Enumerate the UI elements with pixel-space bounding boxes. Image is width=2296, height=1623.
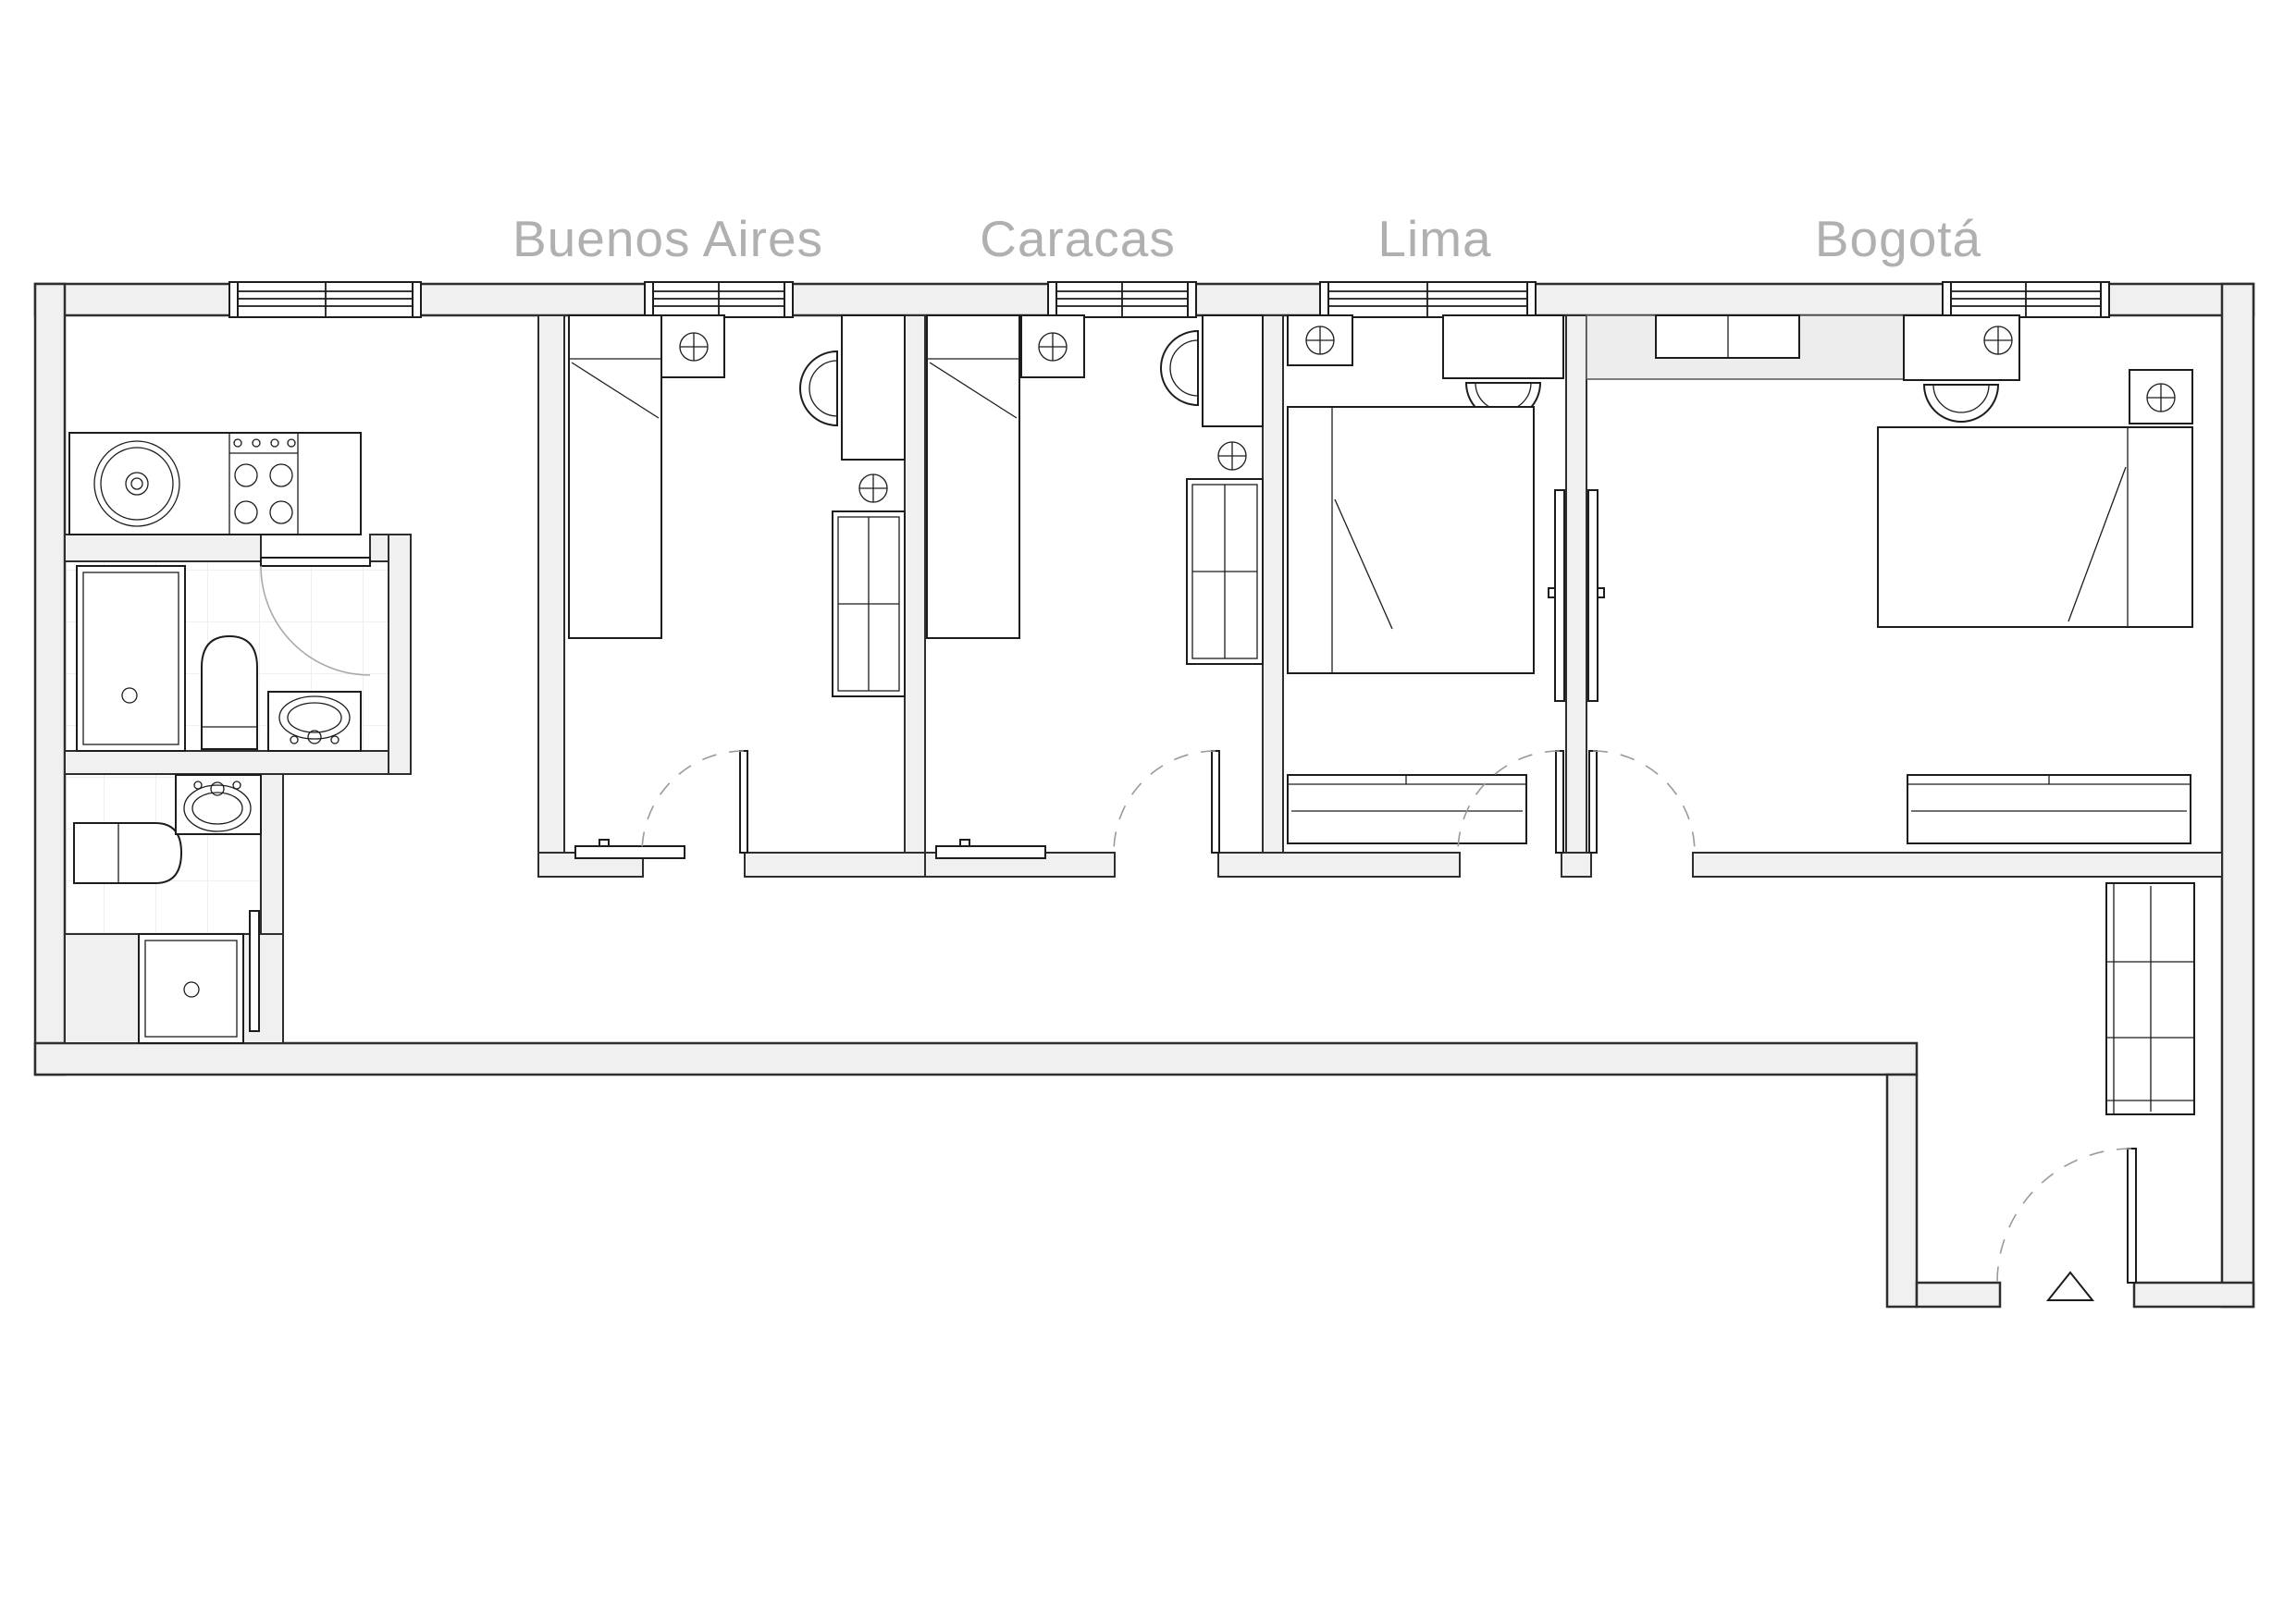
exterior-wall-left	[35, 284, 65, 1075]
wardrobe	[1187, 479, 1263, 664]
shelf-unit	[2106, 883, 2194, 1114]
wall-chunk-shower-left	[65, 934, 139, 1043]
desk	[1443, 315, 1563, 378]
light-socket-icon	[859, 474, 887, 502]
chair-icon	[1161, 331, 1198, 405]
label-buenos-aires: Buenos Aires	[512, 210, 823, 267]
window-buenos-aires	[645, 282, 793, 317]
label-bogota: Bogotá	[1815, 210, 1981, 267]
window-caracas	[1048, 282, 1196, 317]
washbasin-icon	[268, 692, 361, 751]
light-socket-icon	[1306, 326, 1334, 354]
door-swing-arc	[642, 751, 744, 853]
wall-bath1-hall	[389, 535, 411, 774]
bottom-wall-ba-caracas	[745, 853, 925, 877]
single-bed	[1878, 427, 2192, 627]
room-caracas	[927, 315, 1263, 858]
wardrobe	[833, 511, 905, 696]
shower-tray	[139, 934, 243, 1043]
toilet-icon	[74, 823, 181, 883]
wall-caracas-lima	[1263, 315, 1283, 877]
chair-icon	[1924, 385, 1998, 422]
room-lima	[1288, 315, 1564, 853]
room-buenos-aires	[569, 315, 905, 858]
door-leaf	[740, 751, 747, 853]
floor-plan-drawing: Buenos Aires Caracas Lima Bogotá	[0, 0, 2296, 1623]
kitchen-living	[69, 433, 361, 535]
door-leaf	[1556, 751, 1563, 853]
bottom-wall-bogota	[1693, 853, 2222, 877]
label-caracas: Caracas	[980, 210, 1176, 267]
washbasin-icon	[176, 775, 261, 834]
bottom-wall-pier-lima-bogota	[1562, 853, 1591, 877]
label-lima: Lima	[1377, 210, 1491, 267]
window-living	[229, 282, 421, 317]
wall-bath1-bath2	[65, 751, 389, 774]
wardrobe	[1656, 315, 1799, 358]
door-swing-arc	[1114, 751, 1216, 853]
chair-icon	[800, 351, 837, 425]
radiator	[1588, 490, 1604, 701]
bathroom1-door-leaf	[261, 558, 370, 566]
door-leaf	[1589, 751, 1597, 853]
bench-dresser	[1288, 775, 1526, 843]
entrance-hall	[1997, 883, 2194, 1300]
light-socket-icon	[2147, 384, 2175, 412]
floor-plan-page: Buenos Aires Caracas Lima Bogotá	[0, 0, 2296, 1623]
exterior-wall-vestibule-left	[1887, 1075, 1917, 1307]
wall-buenosaires-caracas	[905, 315, 925, 877]
double-bed	[1288, 407, 1534, 673]
exterior-wall-corridor-bottom	[35, 1043, 1917, 1075]
shower-cabin	[77, 566, 185, 751]
door-leaf	[1212, 751, 1219, 853]
toilet-icon	[202, 636, 257, 749]
light-socket-icon	[1218, 442, 1246, 470]
radiator	[575, 840, 685, 858]
wall-lima-bogota	[1566, 315, 1586, 877]
exterior-wall-right	[2222, 284, 2253, 1307]
vestibule-bottom-wall-right	[2134, 1283, 2253, 1307]
room-bogota	[1586, 315, 2192, 853]
bottom-wall-caracas-lima	[1218, 853, 1460, 877]
light-socket-icon	[1984, 326, 2012, 354]
desk	[1203, 315, 1263, 426]
bathroom2-sliding-door-leaf	[250, 911, 259, 1031]
desk	[1904, 315, 2019, 380]
entrance-triangle-icon	[2048, 1273, 2092, 1300]
wall-living-buenosaires	[538, 315, 564, 877]
light-socket-icon	[680, 333, 708, 361]
radiator	[936, 840, 1045, 858]
room-labels: Buenos Aires Caracas Lima Bogotá	[512, 210, 1981, 267]
light-socket-icon	[1039, 333, 1067, 361]
window-bogota	[1943, 282, 2109, 317]
window-lima	[1320, 282, 1536, 317]
entrance-door-swing-arc	[1997, 1149, 2131, 1283]
radiator	[1549, 490, 1564, 701]
single-bed	[927, 315, 1019, 638]
entrance-door-leaf	[2128, 1149, 2136, 1283]
vestibule-bottom-wall-left	[1917, 1283, 2000, 1307]
bench-dresser	[1907, 775, 2191, 843]
single-bed	[569, 315, 661, 638]
wall-kitchen-bath1-left	[65, 535, 261, 561]
door-swing-arc	[1593, 751, 1695, 853]
desk	[842, 315, 905, 460]
